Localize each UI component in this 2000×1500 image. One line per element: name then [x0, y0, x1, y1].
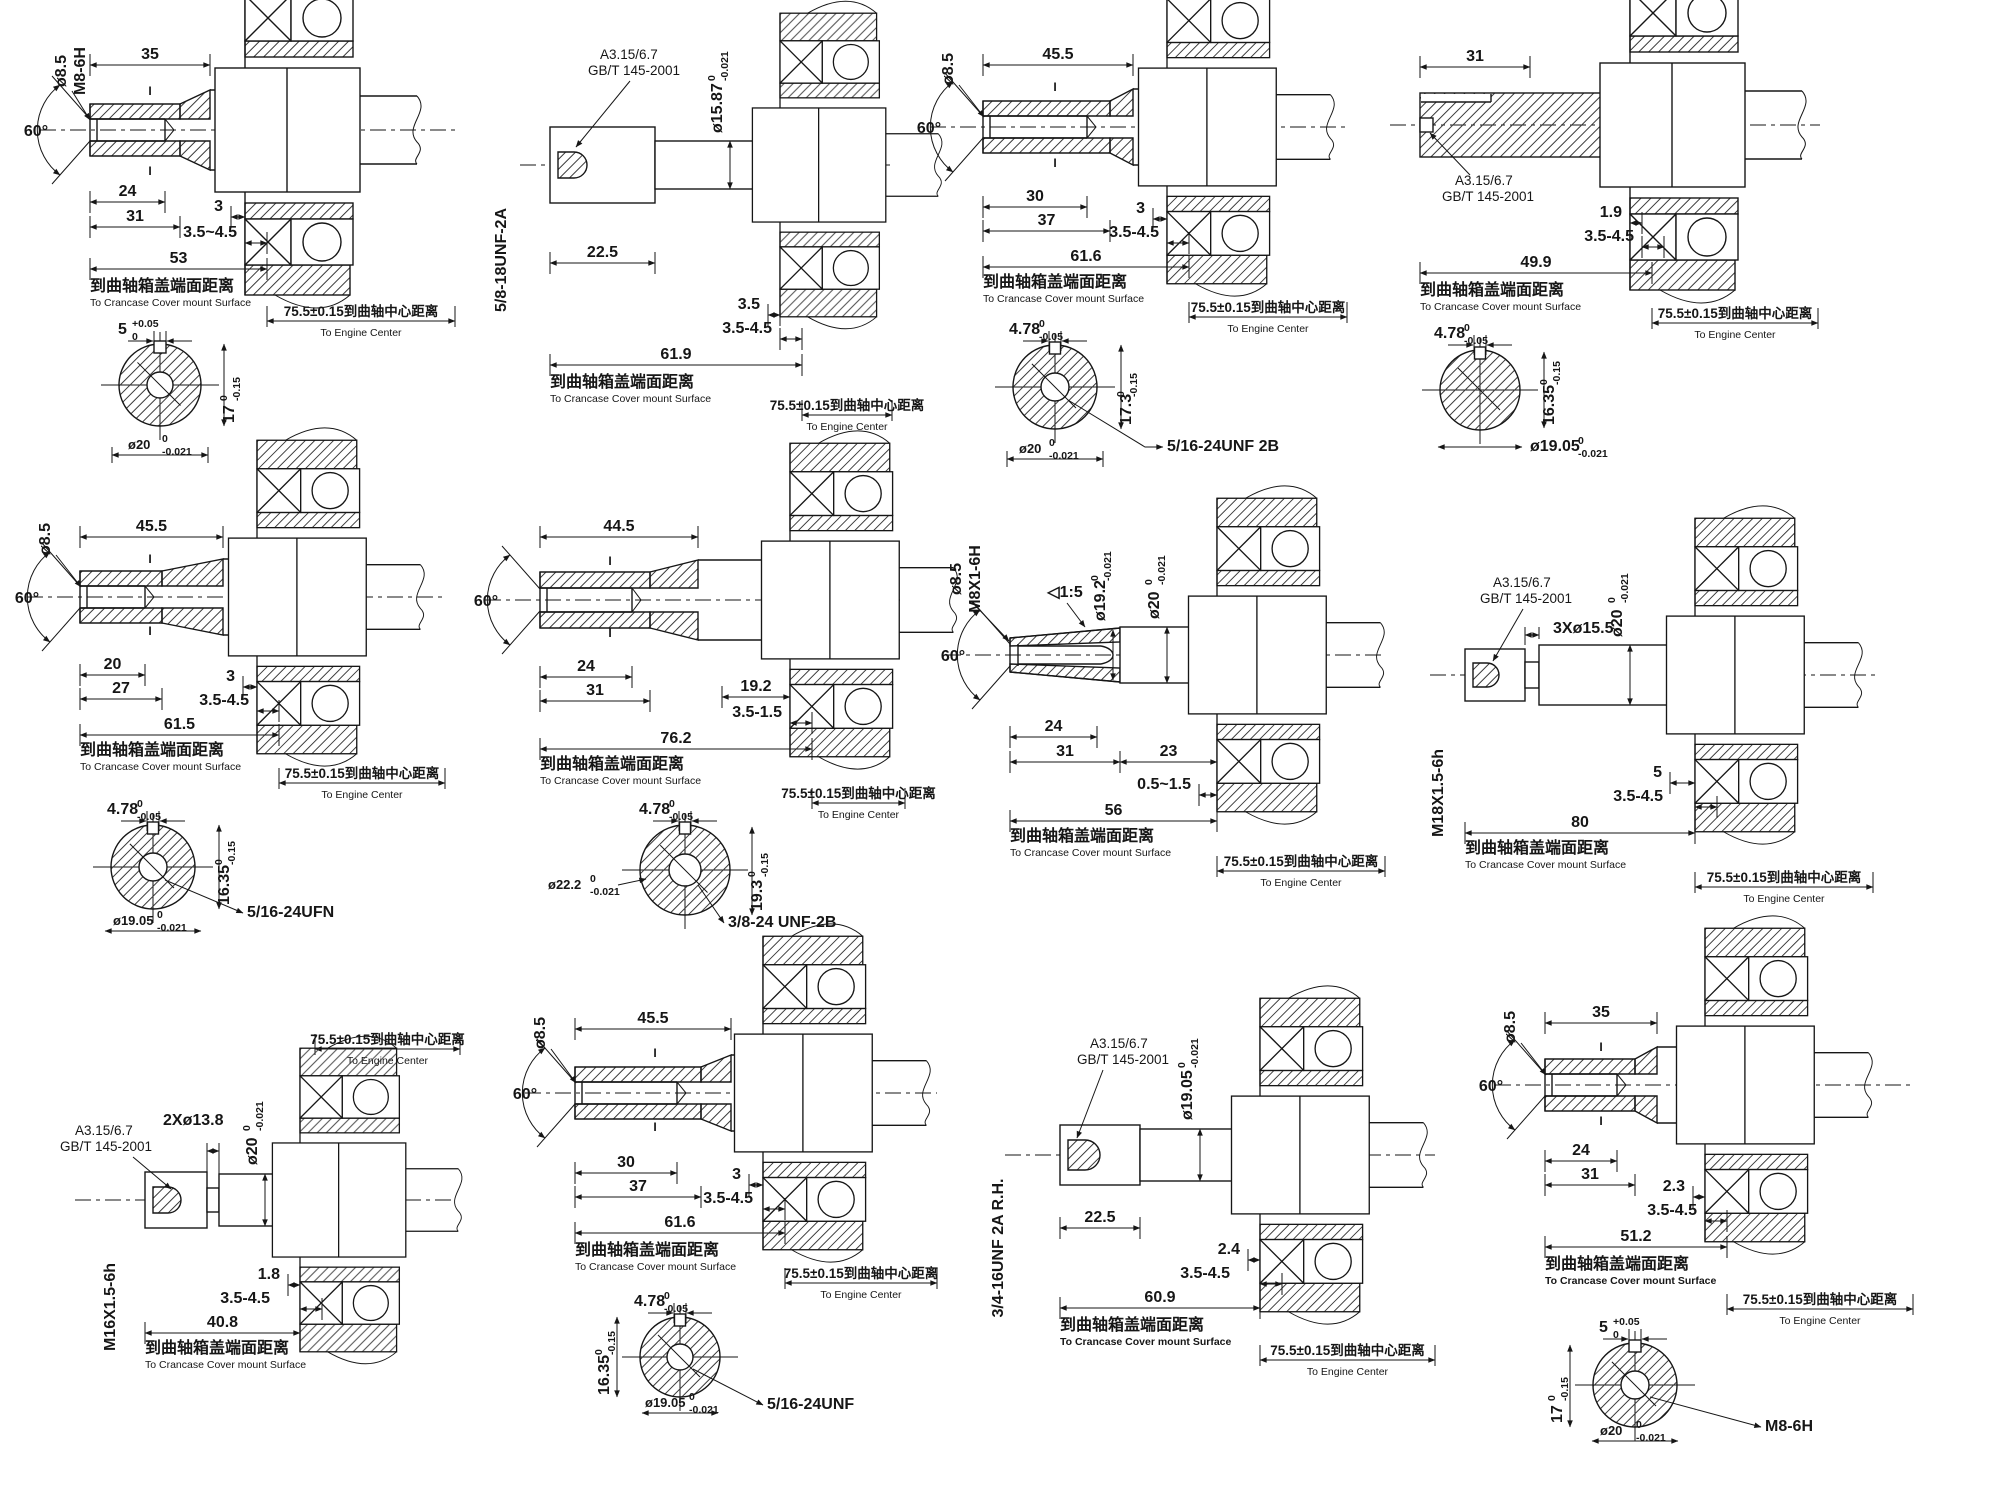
dim-label: 30	[617, 1154, 635, 1171]
dim-label: 61.9	[660, 346, 691, 363]
dim-tol-lower: -0.021	[719, 51, 731, 81]
dim-label: 5	[1653, 764, 1662, 781]
dim-label: 2.4	[1218, 1241, 1240, 1258]
dim-tol-lower: -0.05	[1039, 331, 1063, 343]
dim-tol-upper: 0	[241, 1125, 253, 1131]
panel-1-m8-keyed: 60°ø8.5M8-6H35II243133.5~4.553到曲轴箱盖端面距离T…	[10, 15, 470, 460]
dim-value: ø15.87	[709, 83, 726, 133]
cover-label-cn: 到曲轴箱盖端面距离	[90, 276, 234, 295]
cover-label-en: To Crancase Cover mount Surface	[1060, 1336, 1232, 1348]
dim-tol-lower: -0.05	[664, 1303, 688, 1315]
angle-label: 60°	[1479, 1078, 1503, 1095]
dim-value: 16.35	[216, 865, 233, 905]
cover-label-cn: 到曲轴箱盖端面距离	[540, 754, 684, 773]
cover-label-en: To Crancase Cover mount Surface	[1010, 847, 1171, 859]
center-label-cn: 75.5±0.15到曲轴中心距离	[284, 303, 438, 319]
dia-label: ø8.5	[532, 1017, 549, 1049]
dim-value: ø19.2	[1092, 580, 1109, 621]
dim-label: 35	[1592, 1004, 1610, 1021]
dim-label: 40.8	[207, 1314, 238, 1331]
dim-label: 51.2	[1620, 1228, 1651, 1245]
cover-label-cn: 到曲轴箱盖端面距离	[983, 272, 1127, 291]
dim-tol-upper: 0	[590, 873, 596, 885]
dim-tol-lower: -0.15	[759, 853, 771, 877]
thread-label: M8-6H	[72, 47, 89, 95]
dim-tol-lower: 0	[1613, 1329, 1619, 1341]
dim-label: 3.5	[738, 296, 760, 313]
panel-4-keyed-19: 31A3.15/6.7GB/T 145-20011.93.5-4.549.9到曲…	[1360, 15, 1830, 465]
dim-tol-upper: 0	[1115, 391, 1127, 397]
dim-label: 31	[586, 682, 604, 699]
dim-tol-lower: 0	[132, 331, 138, 343]
dim-tol-lower: -0.021	[254, 1101, 266, 1131]
dim-value: ø20	[1600, 1423, 1622, 1438]
dim-label: 22.5	[1084, 1209, 1115, 1226]
center-label-cn: 75.5±0.15到曲轴中心距离	[1658, 305, 1812, 321]
panel-3-unf-5-16-keyed: 60°ø8.545.5II303733.5-4.561.6到曲轴箱盖端面距离To…	[905, 15, 1355, 465]
cover-label-en: To Crancase Cover mount Surface	[575, 1261, 736, 1273]
dim-label: 3	[1136, 200, 1145, 217]
dim-tol-upper: 0	[213, 859, 225, 865]
callout-finish: A3.15/6.7	[1090, 1036, 1148, 1051]
dim-value: ø19.05	[1179, 1070, 1196, 1120]
thread-label: M8X1-6H	[967, 545, 984, 613]
dim-value: ø20	[128, 437, 150, 452]
dim-value: ø20	[1609, 609, 1626, 637]
dim-label: 3	[732, 1166, 741, 1183]
dim-label: 3	[226, 668, 235, 685]
cover-label-cn: 到曲轴箱盖端面距离	[575, 1240, 719, 1259]
callout-standard: GB/T 145-2001	[60, 1139, 152, 1154]
drawing-sheet: 60°ø8.5M8-6H35II243133.5~4.553到曲轴箱盖端面距离T…	[0, 0, 2000, 1500]
dim-label: 45.5	[1042, 46, 1073, 63]
dim-label: 76.2	[660, 730, 691, 747]
dim-label: 49.9	[1520, 254, 1551, 271]
dia-label: ø8.5	[940, 53, 957, 85]
center-label-cn: 75.5±0.15到曲轴中心距离	[781, 785, 935, 801]
dim-label: 3.5-1.5	[732, 704, 782, 721]
dim-label: 61.6	[664, 1214, 695, 1231]
thread-label: M18X1.5-6h	[1430, 749, 1447, 837]
dim-value: ø20	[1019, 441, 1041, 456]
label-section_mark: I	[653, 1046, 656, 1060]
callout-finish: A3.15/6.7	[600, 47, 658, 62]
callout-finish: A3.15/6.7	[1493, 575, 1551, 590]
dim-tol-lower: -0.05	[669, 811, 693, 823]
dim-tol-lower: -0.021	[1619, 573, 1631, 603]
dim-tol-lower: -0.15	[1559, 1377, 1571, 1401]
callout-standard: GB/T 145-2001	[588, 63, 680, 78]
cover-label-cn: 到曲轴箱盖端面距离	[1420, 280, 1564, 299]
dim-label: 3.5-4.5	[1180, 1265, 1230, 1282]
dim-tol-lower: -0.021	[1578, 448, 1608, 460]
label-section_mark: I	[148, 164, 151, 178]
cover-label-cn: 到曲轴箱盖端面距离	[1010, 826, 1154, 845]
center-label-en: To Engine Center	[1307, 1366, 1389, 1378]
panel-2-unf-5-8: 5/8-18UNF-2AA3.15/6.7GB/T 145-2001ø15.87…	[480, 15, 900, 445]
panel-12-m8-keyed-b: 60°ø8.535II24312.33.5-4.551.2到曲轴箱盖端面距离To…	[1465, 965, 1925, 1445]
dim-tol-upper: 0	[157, 909, 163, 921]
dim-tol-upper: 0	[137, 798, 143, 810]
dim-tol-upper: 0	[1089, 575, 1101, 581]
dim-tol-lower: -0.021	[1189, 1038, 1201, 1068]
dim-label: 1.8	[258, 1266, 280, 1283]
center-label-cn: 75.5±0.15到曲轴中心距离	[285, 765, 439, 781]
dim-label: 31	[1466, 48, 1484, 65]
panel-6-unf-3-8-keyed: 60°44.5II243119.23.5-1.576.2到曲轴箱盖端面距离To …	[460, 465, 910, 930]
dim-label: 30	[1026, 188, 1044, 205]
label-section_mark: I	[1599, 1114, 1602, 1128]
dim-tol-upper: 0	[1606, 597, 1618, 603]
dim-label: 3.5-4.5	[1613, 788, 1663, 805]
dim-tol-lower: -0.15	[1551, 361, 1563, 385]
dim-label: 0.5~1.5	[1137, 776, 1191, 793]
dim-label: 61.6	[1070, 248, 1101, 265]
dim-label: 31	[1581, 1166, 1599, 1183]
dim-value: 4.78	[634, 1293, 665, 1310]
angle-label: 60°	[474, 593, 498, 610]
dim-label: 22.5	[587, 244, 618, 261]
center-label-cn: 75.5±0.15到曲轴中心距离	[1743, 1291, 1897, 1307]
dim-value: 17	[221, 405, 238, 423]
dim-tol-lower: -0.15	[226, 841, 238, 865]
center-label-en: To Engine Center	[1743, 893, 1825, 905]
center-label-cn: 75.5±0.15到曲轴中心距离	[1224, 853, 1378, 869]
dim-value: 4.78	[107, 801, 138, 818]
dim-label: 61.5	[164, 716, 195, 733]
dim-label: 31	[1056, 743, 1074, 760]
dim-value: ø19.05	[113, 913, 153, 928]
dim-label: 19.2	[740, 678, 771, 695]
dim-label: 3.5-4.5	[722, 320, 772, 337]
dia-label: ø8.5	[53, 55, 70, 87]
center-label-cn: 75.5±0.15到曲轴中心距离	[770, 397, 924, 413]
dim-tol-lower: -0.021	[162, 446, 192, 458]
panel-7-taper-m8: 60°ø8.5M8X1-6H◁1:5ø19.20-0.021ø200-0.021…	[915, 505, 1395, 925]
dim-tol-upper: 0	[1538, 379, 1550, 385]
dim-tol-upper: 0	[1636, 1419, 1642, 1431]
dim-label: 3.5-4.5	[1647, 1202, 1697, 1219]
thread-label: 3/4-16UNF 2A R.H.	[990, 1179, 1007, 1318]
cover-label-en: To Crancase Cover mount Surface	[1420, 301, 1581, 313]
label-section_mark: I	[148, 552, 151, 566]
dim-tol-upper: +0.05	[132, 318, 159, 330]
thread-label: M16X1.5-6h	[102, 1263, 119, 1351]
angle-label: 60°	[941, 648, 965, 665]
center-label-en: To Engine Center	[1227, 323, 1309, 335]
dim-value: ø20	[244, 1137, 261, 1165]
center-label-en: To Engine Center	[806, 421, 888, 433]
dia-label: ø8.5	[1502, 1011, 1519, 1043]
dim-tol-upper: 0	[1464, 322, 1470, 334]
angle-label: 60°	[15, 590, 39, 607]
callout-standard: GB/T 145-2001	[1480, 591, 1572, 606]
dim-tol-upper: 0	[664, 1290, 670, 1302]
dim-tol-lower: -0.021	[689, 1404, 719, 1416]
cover-label-en: To Crancase Cover mount Surface	[550, 393, 711, 405]
dim-tol-upper: 0	[689, 1391, 695, 1403]
dim-tol-upper: +0.05	[1613, 1316, 1640, 1328]
dim-value: 17.3	[1118, 394, 1135, 425]
cover-label-en: To Crancase Cover mount Surface	[540, 775, 701, 787]
dim-tol-lower: -0.05	[137, 811, 161, 823]
dim-label: 53	[170, 250, 188, 267]
dim-tol-lower: -0.021	[1102, 551, 1114, 581]
dim-label: 56	[1105, 802, 1123, 819]
panel-9-m16: 75.5±0.15到曲轴中心距离To Engine CenterA3.15/6.…	[15, 985, 465, 1425]
dim-tol-upper: 0	[1049, 437, 1055, 449]
dim-value: 5	[1599, 1319, 1608, 1336]
center-label-cn: 75.5±0.15到曲轴中心距离	[784, 1265, 938, 1281]
dim-value: 4.78	[1009, 321, 1040, 338]
dim-tol-lower: -0.15	[1128, 373, 1140, 397]
dim-label: 2.3	[1663, 1178, 1685, 1195]
dim-tol-upper: 0	[1546, 1395, 1558, 1401]
thread-label: 5/16-24UNF 2B	[1167, 438, 1279, 455]
cover-label-en: To Crancase Cover mount Surface	[1465, 859, 1626, 871]
label-section_mark: I	[608, 554, 611, 568]
dim-tol-upper: 0	[162, 433, 168, 445]
dim-value: ø19.05	[645, 1395, 685, 1410]
panel-10-unf-5-16-c: 60°ø8.545.5II303733.5-4.561.6到曲轴箱盖端面距离To…	[505, 965, 945, 1430]
cover-label-en: To Crancase Cover mount Surface	[145, 1359, 306, 1371]
dim-label: 24	[1045, 718, 1063, 735]
cover-label-en: To Crancase Cover mount Surface	[80, 761, 241, 773]
panel-5-unf-5-16-b: 60°ø8.545.5II202733.5-4.561.5到曲轴箱盖端面距离To…	[5, 485, 455, 930]
label-section_mark: I	[1053, 156, 1056, 170]
label-section_mark: I	[1599, 1040, 1602, 1054]
callout-finish: A3.15/6.7	[1455, 173, 1513, 188]
thread-label: 3/8-24 UNF-2B	[728, 914, 836, 931]
dim-label: 80	[1571, 814, 1589, 831]
label-section_mark: I	[653, 1120, 656, 1134]
center-label-en: To Engine Center	[321, 789, 403, 801]
dim-label: 3.5-4.5	[1109, 224, 1159, 241]
angle-label: 60°	[513, 1086, 537, 1103]
dim-label: 37	[1038, 212, 1056, 229]
dim-label: 24	[1572, 1142, 1590, 1159]
dim-tol-upper: 0	[746, 871, 758, 877]
dim-tol-upper: 0	[1578, 435, 1584, 447]
dim-tol-lower: -0.021	[1636, 1432, 1666, 1444]
thread-label: M8-6H	[1765, 1418, 1813, 1435]
angle-label: 60°	[24, 123, 48, 140]
panel-11-unf-3-4: A3.15/6.7GB/T 145-2001ø19.050-0.0213/4-1…	[965, 990, 1445, 1385]
dim-tol-lower: -0.15	[606, 1331, 618, 1355]
dim-label: 20	[104, 656, 122, 673]
dim-label: 44.5	[603, 518, 634, 535]
dim-label: 24	[577, 658, 595, 675]
dim-value: ø20	[1146, 591, 1163, 619]
dim-tol-upper: 0	[218, 395, 230, 401]
dim-label: 27	[112, 680, 130, 697]
dim-label: 60.9	[1144, 1289, 1175, 1306]
dim-tol-lower: -0.021	[590, 886, 620, 898]
callout-finish: A3.15/6.7	[75, 1123, 133, 1138]
label-section_mark: I	[148, 84, 151, 98]
dim-value: ø22.2	[548, 877, 581, 892]
dim-tol-lower: -0.15	[231, 377, 243, 401]
label-section_mark: I	[148, 624, 151, 638]
dim-label: 3	[214, 198, 223, 215]
cover-label-cn: 到曲轴箱盖端面距离	[1060, 1315, 1204, 1334]
dim-tol-upper: 0	[1143, 579, 1155, 585]
center-label-cn: 75.5±0.15到曲轴中心距离	[1270, 1342, 1424, 1358]
dim-value: 4.78	[639, 801, 670, 818]
dim-value: 19.3	[749, 880, 766, 911]
dim-tol-upper: 0	[706, 75, 718, 81]
cover-label-en: To Crancase Cover mount Surface	[983, 293, 1144, 305]
taper-label: ◁1:5	[1046, 584, 1083, 601]
dim-value: 16.35	[596, 1355, 613, 1395]
center-label-en: To Engine Center	[320, 327, 402, 339]
center-label-en: To Engine Center	[1694, 329, 1776, 341]
dia-label: ø8.5	[37, 523, 54, 555]
dim-label: 31	[126, 208, 144, 225]
neck-label: 3Xø15.5	[1553, 620, 1614, 637]
callout-standard: GB/T 145-2001	[1077, 1052, 1169, 1067]
dia-label: ø8.5	[948, 563, 965, 595]
cover-label-en: To Crancase Cover mount Surface	[90, 297, 251, 309]
dim-tol-lower: -0.021	[1156, 555, 1168, 585]
cover-label-cn: 到曲轴箱盖端面距离	[1545, 1254, 1689, 1273]
dim-label: 3.5~4.5	[183, 224, 237, 241]
dim-value: ø19.05	[1530, 438, 1580, 455]
dim-value: 4.78	[1434, 325, 1465, 342]
dim-label: 3.5-4.5	[703, 1190, 753, 1207]
center-label-cn: 75.5±0.15到曲轴中心距离	[1191, 299, 1345, 315]
dim-tol-lower: -0.05	[1464, 335, 1488, 347]
dim-label: 3.5-4.5	[220, 1290, 270, 1307]
center-label-cn: 75.5±0.15到曲轴中心距离	[1707, 869, 1861, 885]
cover-label-cn: 到曲轴箱盖端面距离	[1465, 838, 1609, 857]
dim-label: 3.5-4.5	[1584, 228, 1634, 245]
center-label-en: To Engine Center	[1260, 877, 1342, 889]
dim-tol-upper: 0	[593, 1349, 605, 1355]
cover-label-cn: 到曲轴箱盖端面距离	[80, 740, 224, 759]
center-label-en: To Engine Center	[820, 1289, 902, 1301]
dim-value: 5	[118, 321, 127, 338]
center-label-en: To Engine Center	[1779, 1315, 1861, 1327]
dim-tol-lower: -0.021	[1049, 450, 1079, 462]
dim-label: 37	[629, 1178, 647, 1195]
neck-label: 2Xø13.8	[163, 1112, 224, 1129]
cover-label-cn: 到曲轴箱盖端面距离	[145, 1338, 289, 1357]
dim-tol-lower: -0.021	[157, 922, 187, 934]
callout-standard: GB/T 145-2001	[1442, 189, 1534, 204]
cover-label-cn: 到曲轴箱盖端面距离	[550, 372, 694, 391]
angle-label: 60°	[917, 120, 941, 137]
dim-label: 3.5-4.5	[199, 692, 249, 709]
thread-label: 5/16-24UFN	[247, 904, 334, 921]
dim-label: 35	[141, 46, 159, 63]
dim-label: 1.9	[1600, 204, 1622, 221]
dim-value: 17	[1549, 1405, 1566, 1423]
thread-label: 5/16-24UNF	[767, 1396, 854, 1413]
cover-label-en: To Crancase Cover mount Surface	[1545, 1275, 1717, 1287]
label-section_mark: I	[608, 626, 611, 640]
dim-tol-upper: 0	[1176, 1062, 1188, 1068]
dim-label: 45.5	[136, 518, 167, 535]
label-section_mark: I	[1053, 80, 1056, 94]
dim-label: 45.5	[637, 1010, 668, 1027]
panel-8-m18: A3.15/6.7GB/T 145-20013Xø15.5ø200-0.021M…	[1405, 535, 1885, 920]
dim-tol-upper: 0	[669, 798, 675, 810]
center-label-en: To Engine Center	[818, 809, 900, 821]
thread-label: 5/8-18UNF-2A	[493, 208, 510, 312]
dim-tol-upper: 0	[1039, 318, 1045, 330]
dim-label: 23	[1160, 743, 1178, 760]
dim-label: 24	[119, 183, 137, 200]
dim-value: 16.35	[1541, 385, 1558, 425]
